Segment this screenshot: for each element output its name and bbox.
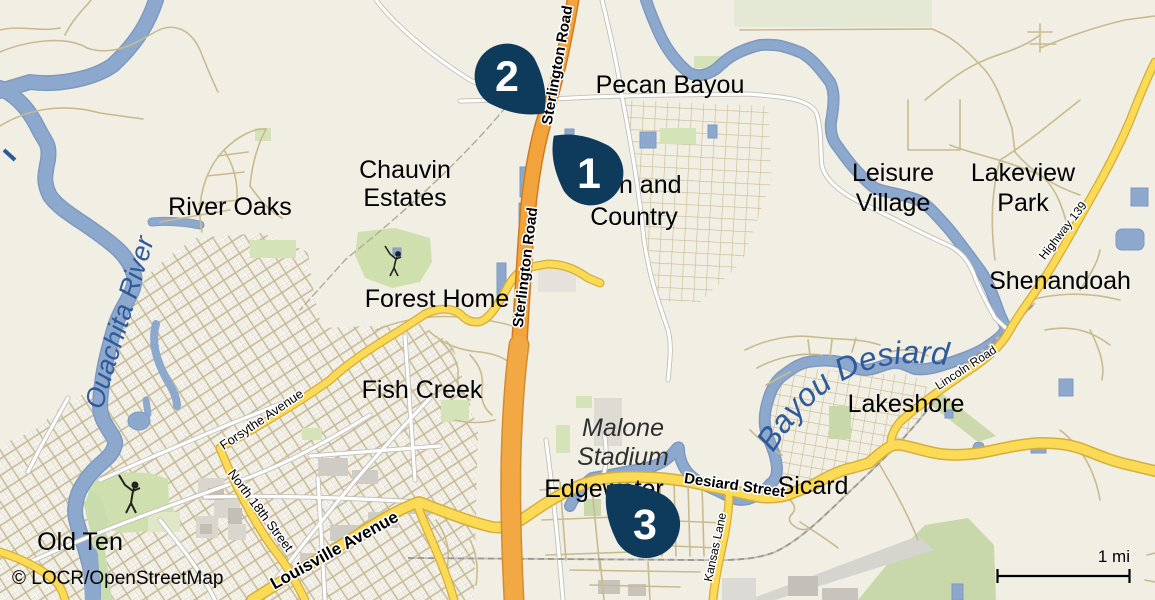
svg-text:Old Ten: Old Ten <box>37 528 123 556</box>
svg-text:Forest Home: Forest Home <box>365 285 509 313</box>
svg-text:1 mi: 1 mi <box>1098 547 1130 566</box>
svg-text:Shenandoah: Shenandoah <box>989 267 1131 295</box>
svg-text:Chauvin: Chauvin <box>359 156 451 184</box>
svg-text:© LOCR/OpenStreetMap: © LOCR/OpenStreetMap <box>12 568 223 589</box>
svg-text:Stadium: Stadium <box>577 443 669 471</box>
svg-text:Pecan Bayou: Pecan Bayou <box>596 71 745 99</box>
svg-text:River Oaks: River Oaks <box>168 193 292 221</box>
svg-text:Village: Village <box>856 189 931 217</box>
svg-text:1: 1 <box>577 150 601 198</box>
svg-text:Lakeview: Lakeview <box>971 159 1076 187</box>
svg-text:Malone: Malone <box>582 414 664 442</box>
svg-text:Sicard: Sicard <box>778 472 849 500</box>
svg-text:Park: Park <box>997 189 1049 217</box>
svg-text:3: 3 <box>633 501 657 549</box>
svg-text:Country: Country <box>590 203 678 231</box>
svg-text:Estates: Estates <box>363 184 446 212</box>
svg-text:2: 2 <box>495 53 519 101</box>
svg-text:Lakeshore: Lakeshore <box>848 390 965 418</box>
svg-text:Fish Creek: Fish Creek <box>362 376 483 404</box>
svg-text:Leisure: Leisure <box>852 159 934 187</box>
